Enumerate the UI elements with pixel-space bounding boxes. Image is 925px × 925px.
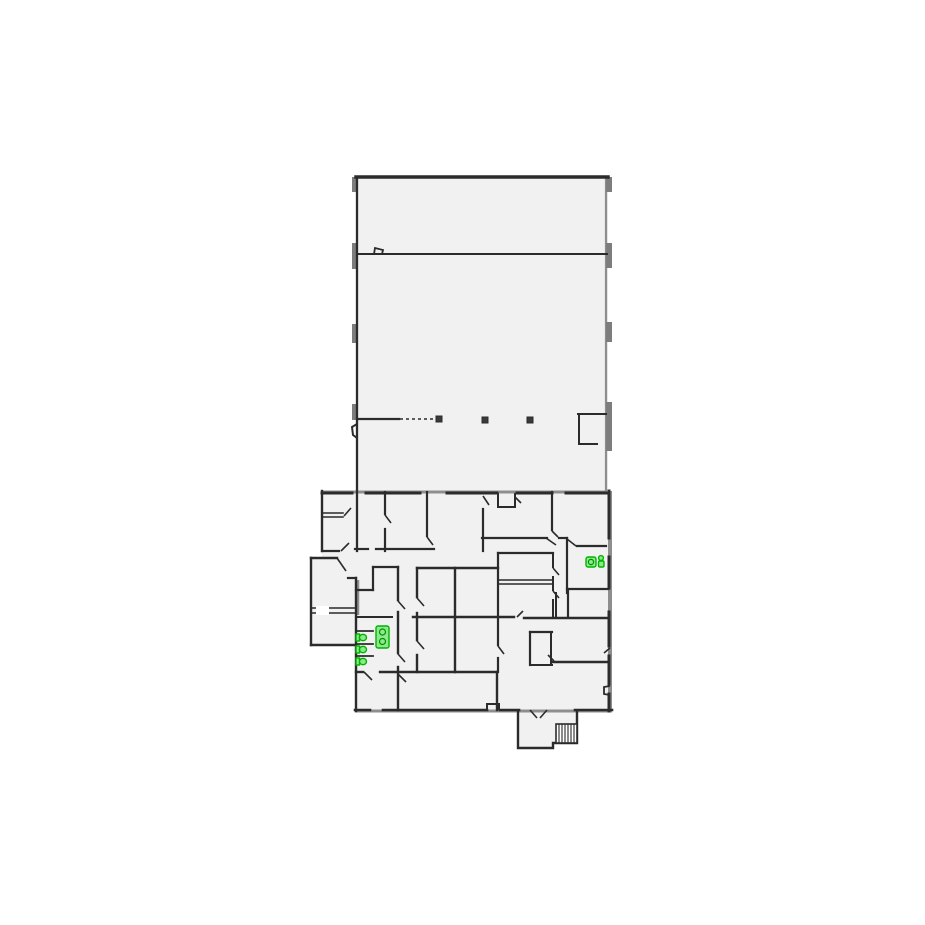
toilet-top-icon	[586, 557, 596, 567]
main-hall-floor	[356, 176, 608, 493]
pilaster	[606, 177, 612, 192]
floor-plan-page	[0, 0, 925, 925]
window-gap	[316, 606, 329, 615]
toilet-bowl	[360, 658, 367, 664]
column-post	[482, 417, 488, 423]
pilaster	[606, 322, 612, 342]
column-post	[436, 416, 442, 422]
person-sink-icon	[599, 556, 604, 561]
pilaster	[606, 402, 612, 451]
person-body	[599, 561, 605, 567]
pilaster	[606, 243, 612, 268]
toilet-bowl	[360, 646, 367, 652]
floor-plan	[0, 0, 925, 925]
column-post	[527, 417, 533, 423]
toilet-bowl	[360, 634, 367, 640]
